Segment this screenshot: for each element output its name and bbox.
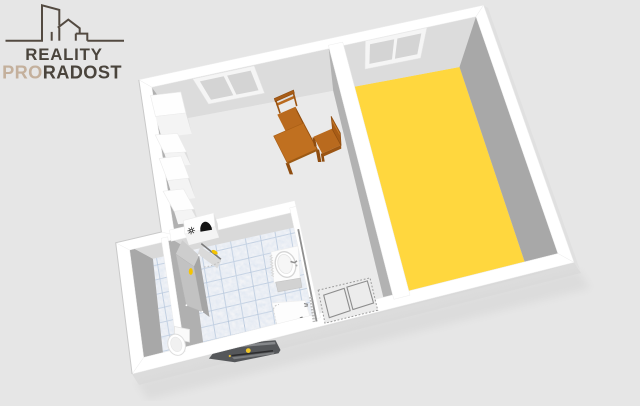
svg-text:PRORADOST: PRORADOST: [2, 63, 122, 83]
svg-text:REALITY: REALITY: [25, 45, 102, 64]
